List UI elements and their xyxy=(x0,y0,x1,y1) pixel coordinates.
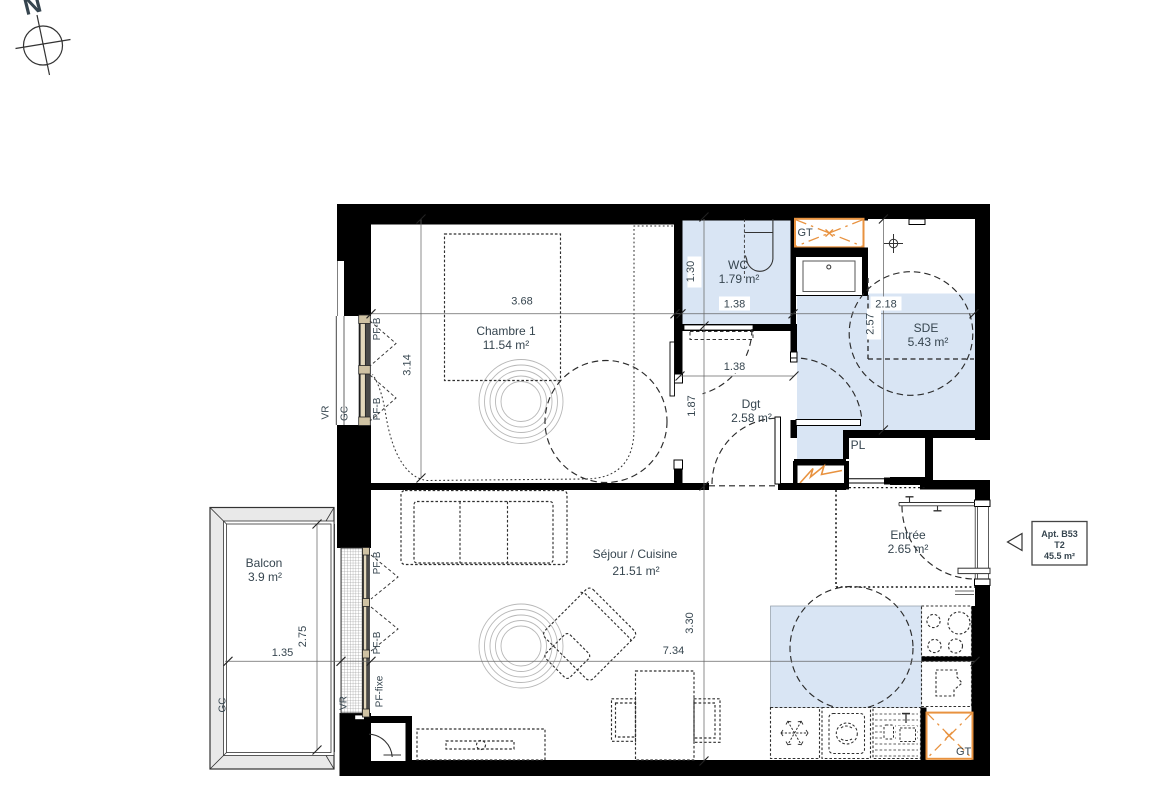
svg-text:3.68: 3.68 xyxy=(511,296,532,308)
svg-text:VR: VR xyxy=(339,696,350,710)
svg-text:GT: GT xyxy=(956,746,972,758)
svg-text:PF-B: PF-B xyxy=(372,631,383,654)
svg-text:PF-fixe: PF-fixe xyxy=(375,675,386,707)
svg-text:21.51 m²: 21.51 m² xyxy=(612,564,659,578)
svg-text:2.65 m²: 2.65 m² xyxy=(888,542,929,556)
svg-text:WC: WC xyxy=(728,258,748,272)
svg-text:PF-B: PF-B xyxy=(372,397,383,420)
svg-text:GT: GT xyxy=(798,227,814,239)
svg-text:1.38: 1.38 xyxy=(724,299,745,311)
svg-text:GC: GC xyxy=(340,406,351,421)
svg-text:3.30: 3.30 xyxy=(684,612,696,633)
svg-text:7.34: 7.34 xyxy=(663,645,684,657)
svg-text:3.14: 3.14 xyxy=(402,354,414,375)
svg-text:PF-B: PF-B xyxy=(372,551,383,574)
svg-text:1.79 m²: 1.79 m² xyxy=(719,272,760,286)
svg-text:5.43 m²: 5.43 m² xyxy=(908,335,949,349)
svg-text:45.5 m²: 45.5 m² xyxy=(1044,551,1075,561)
svg-text:1.30: 1.30 xyxy=(685,261,697,282)
svg-text:Séjour / Cuisine: Séjour / Cuisine xyxy=(593,547,678,561)
svg-text:T2: T2 xyxy=(1054,540,1065,550)
svg-text:1.35: 1.35 xyxy=(272,647,293,659)
svg-text:1.38: 1.38 xyxy=(724,361,745,373)
svg-text:2.58 m²: 2.58 m² xyxy=(731,411,772,425)
svg-text:2.57: 2.57 xyxy=(865,313,877,334)
svg-text:PL: PL xyxy=(851,438,866,452)
svg-text:GC: GC xyxy=(218,698,229,713)
svg-text:Balcon: Balcon xyxy=(246,556,283,570)
svg-text:3.9 m²: 3.9 m² xyxy=(248,570,282,584)
svg-text:Apt. B53: Apt. B53 xyxy=(1041,529,1078,539)
svg-text:Chambre 1: Chambre 1 xyxy=(476,324,536,338)
svg-text:Entrée: Entrée xyxy=(890,528,926,542)
svg-text:2.75: 2.75 xyxy=(297,626,309,647)
svg-text:11.54 m²: 11.54 m² xyxy=(483,338,529,352)
svg-text:SDE: SDE xyxy=(914,321,939,335)
svg-text:VR: VR xyxy=(321,406,332,420)
svg-text:1.87: 1.87 xyxy=(686,395,698,416)
svg-text:Dgt: Dgt xyxy=(742,397,761,411)
svg-text:PF-B: PF-B xyxy=(372,317,383,340)
